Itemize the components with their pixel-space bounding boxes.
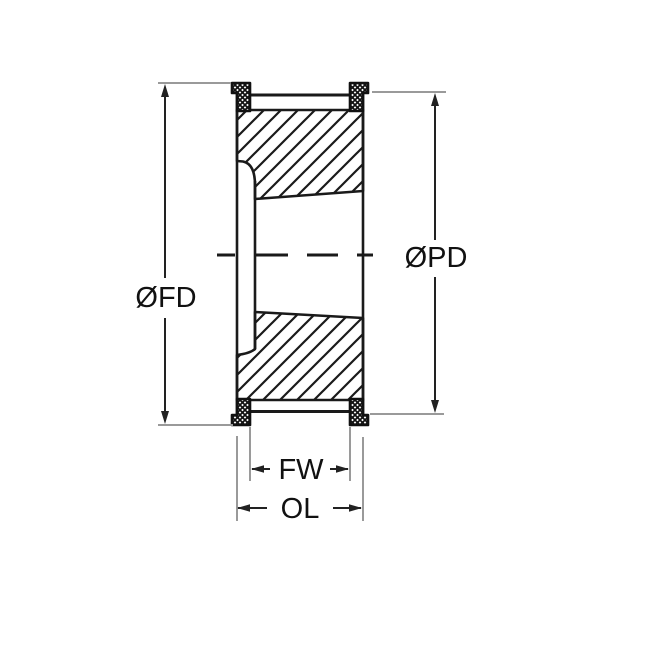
dim-pd-label: ØPD — [405, 242, 468, 274]
dim-fw-label: FW — [278, 454, 324, 486]
pulley-drawing: ØFD ØPD FW OL — [0, 0, 670, 670]
dim-ol-label: OL — [281, 493, 320, 525]
technical-drawing-canvas: ØFD ØPD FW OL — [0, 0, 670, 670]
dim-fd-label: ØFD — [135, 282, 196, 314]
